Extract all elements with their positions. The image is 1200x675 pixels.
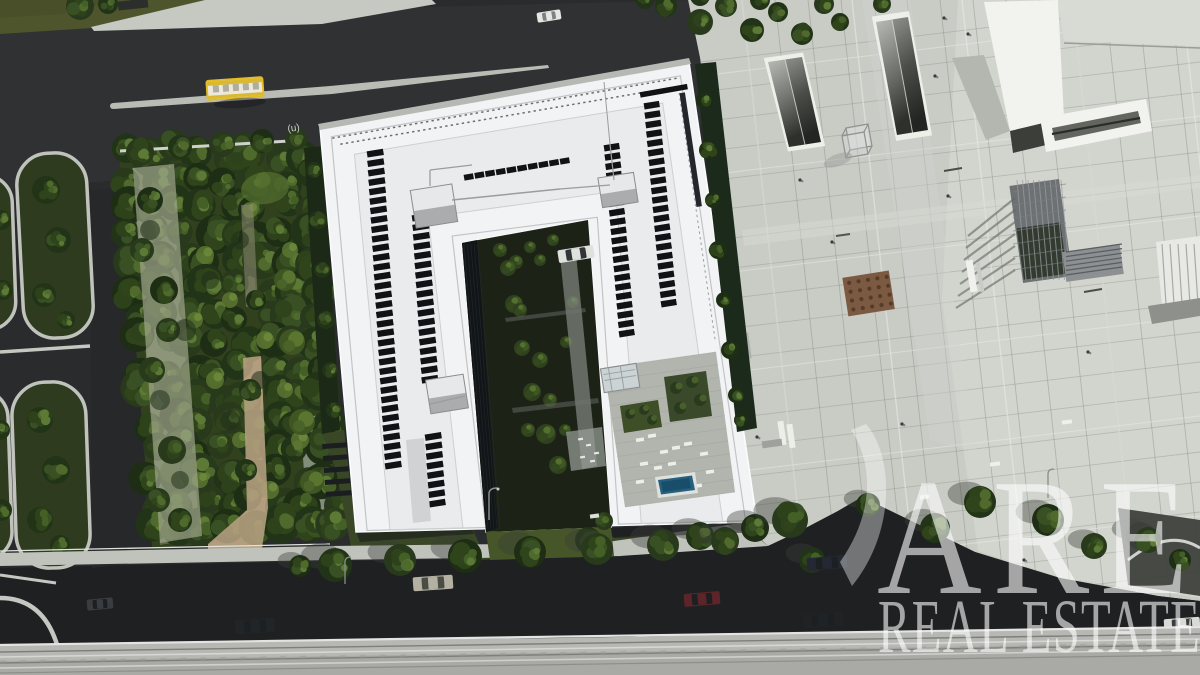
svg-text:(u): (u) bbox=[287, 122, 301, 135]
svg-text:REAL ESTATE: REAL ESTATE bbox=[878, 584, 1200, 669]
